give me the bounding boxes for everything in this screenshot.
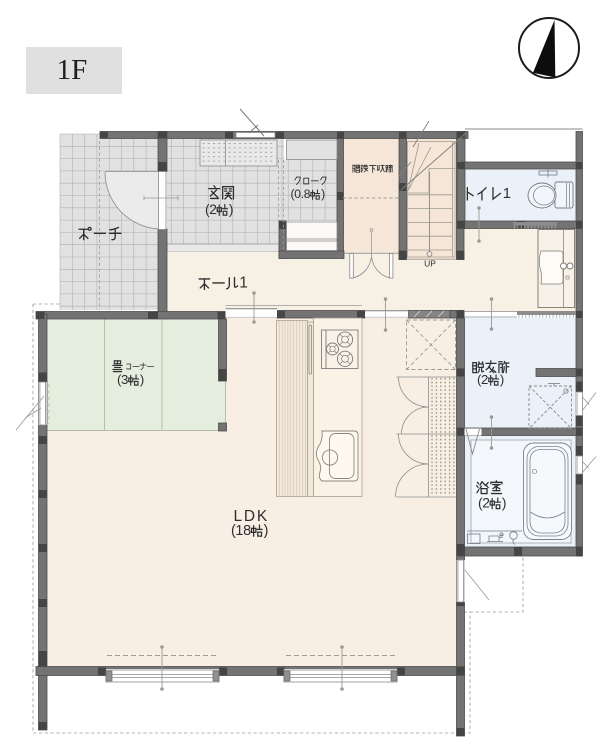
svg-text:1F: 1F — [57, 54, 88, 86]
svg-text:1: 1 — [503, 186, 511, 202]
svg-text:): ) — [502, 495, 507, 510]
svg-text:3: 3 — [121, 372, 128, 387]
svg-text:2: 2 — [481, 372, 488, 387]
svg-text:): ) — [321, 187, 325, 201]
svg-text:UP: UP — [424, 259, 436, 269]
svg-text:1: 1 — [239, 275, 248, 292]
svg-text:8: 8 — [304, 187, 311, 201]
svg-text:2: 2 — [482, 495, 490, 510]
svg-text:): ) — [140, 372, 144, 387]
svg-text:): ) — [500, 372, 504, 387]
svg-text:2: 2 — [209, 202, 217, 217]
svg-text:): ) — [229, 202, 234, 217]
svg-text:): ) — [264, 523, 269, 539]
svg-text:8: 8 — [243, 523, 251, 539]
